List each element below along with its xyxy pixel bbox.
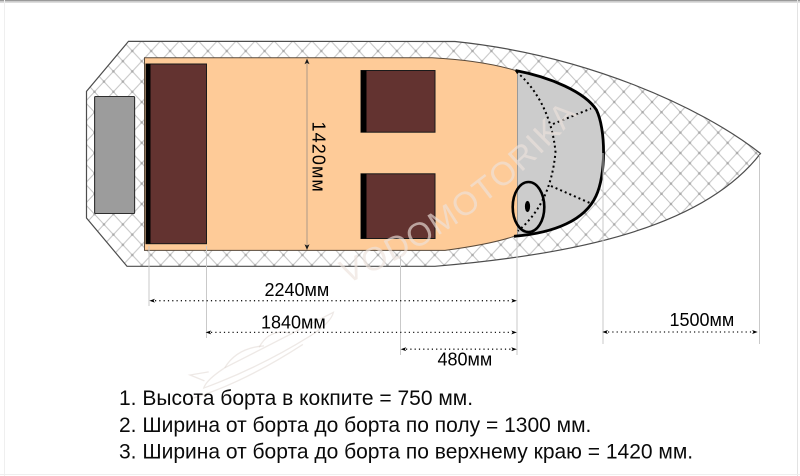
svg-text:1420мм: 1420мм: [309, 122, 329, 193]
svg-text:1840мм: 1840мм: [261, 312, 326, 332]
svg-text:2240мм: 2240мм: [265, 280, 330, 300]
svg-text:2. Ширина от борта до борта по: 2. Ширина от борта до борта по полу = 13…: [119, 414, 591, 437]
svg-text:1500мм: 1500мм: [670, 310, 735, 330]
svg-text:3. Ширина от борта до борта по: 3. Ширина от борта до борта по верхнему …: [119, 441, 693, 464]
svg-text:1. Высота борта в кокпите = 75: 1. Высота борта в кокпите = 750 мм.: [119, 387, 473, 410]
svg-text:480мм: 480мм: [438, 350, 493, 370]
